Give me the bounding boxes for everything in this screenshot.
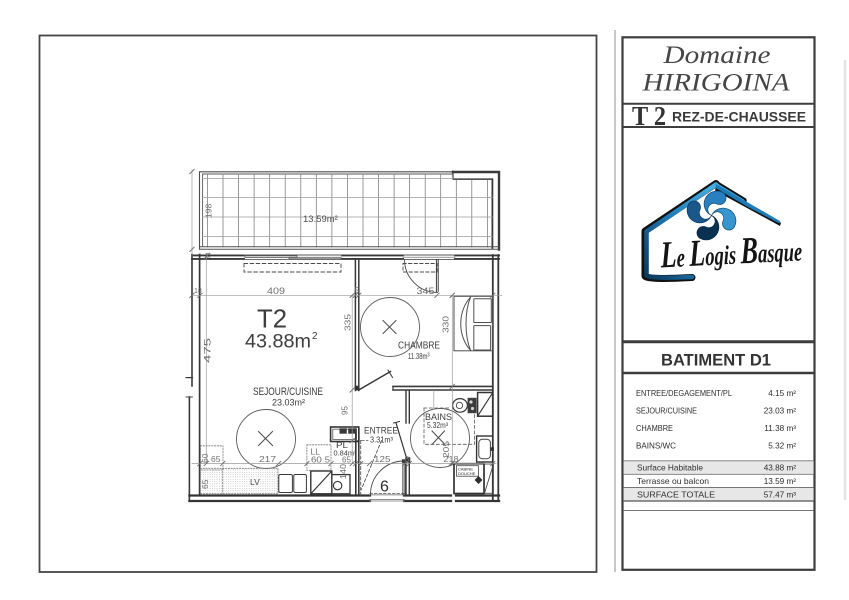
svg-text:6: 6	[380, 479, 389, 496]
svg-text:HIRIGOINA: HIRIGOINA	[641, 70, 790, 97]
svg-text:5: 5	[355, 286, 360, 295]
svg-text:125: 125	[374, 454, 391, 464]
svg-text:11.38 m³: 11.38 m³	[764, 424, 796, 433]
svg-text:60: 60	[200, 453, 210, 463]
svg-text:95: 95	[341, 406, 350, 415]
svg-text:57.47 m³: 57.47 m³	[764, 490, 797, 499]
svg-text:REZ-DE-CHAUSSEE: REZ-DE-CHAUSSEE	[672, 109, 806, 125]
svg-text:475: 475	[203, 338, 213, 363]
svg-text:5.32m³: 5.32m³	[427, 421, 448, 430]
svg-text:43.88 m²: 43.88 m²	[764, 463, 797, 472]
svg-text:BAINS/WC: BAINS/WC	[636, 442, 676, 451]
svg-text:60 5: 60 5	[311, 455, 330, 465]
svg-text:LV: LV	[250, 477, 260, 487]
svg-text:65: 65	[211, 454, 221, 464]
svg-text:BATIMENT D1: BATIMENT D1	[661, 351, 771, 370]
svg-text:3.31m³: 3.31m³	[370, 436, 393, 445]
svg-text:13.59m²: 13.59m²	[303, 214, 338, 225]
svg-text:Domaine: Domaine	[662, 42, 770, 69]
svg-text:43.88m: 43.88m	[245, 332, 311, 353]
svg-text:217: 217	[259, 454, 276, 464]
svg-text:140: 140	[339, 463, 348, 479]
svg-text:13.59 m²: 13.59 m²	[764, 477, 797, 486]
svg-text:SEJOUR/CUISINE: SEJOUR/CUISINE	[253, 386, 323, 398]
svg-text:18: 18	[194, 288, 202, 295]
svg-text:T 2: T 2	[632, 101, 666, 131]
svg-text:2: 2	[312, 331, 318, 342]
svg-text:CHAMBRE: CHAMBRE	[398, 340, 440, 352]
svg-text:409: 409	[267, 286, 285, 296]
svg-text:ENTREE/DEGAGEMENT/PL: ENTREE/DEGAGEMENT/PL	[636, 389, 732, 398]
svg-text:23.03 m²: 23.03 m²	[764, 407, 797, 416]
svg-text:4.15 m²: 4.15 m²	[768, 389, 796, 398]
svg-text:T2: T2	[257, 304, 287, 334]
svg-text:198: 198	[204, 204, 214, 218]
svg-text:SEJOUR/CUISINE: SEJOUR/CUISINE	[636, 407, 697, 416]
svg-text:SURFACE TOTALE: SURFACE TOTALE	[637, 490, 716, 499]
svg-text:DOUCHE: DOUCHE	[458, 471, 476, 476]
svg-text:330: 330	[441, 316, 451, 333]
svg-text:Surface Habitable: Surface Habitable	[637, 463, 703, 472]
svg-text:65: 65	[200, 479, 210, 489]
svg-text:335: 335	[343, 314, 353, 331]
svg-text:11.38m³: 11.38m³	[408, 351, 430, 361]
svg-text:218: 218	[444, 454, 459, 464]
svg-text:23.03m²: 23.03m²	[272, 398, 305, 409]
svg-text:6: 6	[405, 454, 410, 464]
svg-text:65: 65	[342, 456, 351, 465]
svg-text:Terrasse ou balcon: Terrasse ou balcon	[637, 477, 709, 486]
svg-text:CHAMBRE: CHAMBRE	[636, 424, 673, 433]
svg-text:Le Logis Basque: Le Logis Basque	[659, 228, 802, 277]
svg-text:5.32 m²: 5.32 m²	[768, 442, 796, 451]
svg-text:345: 345	[417, 286, 435, 296]
